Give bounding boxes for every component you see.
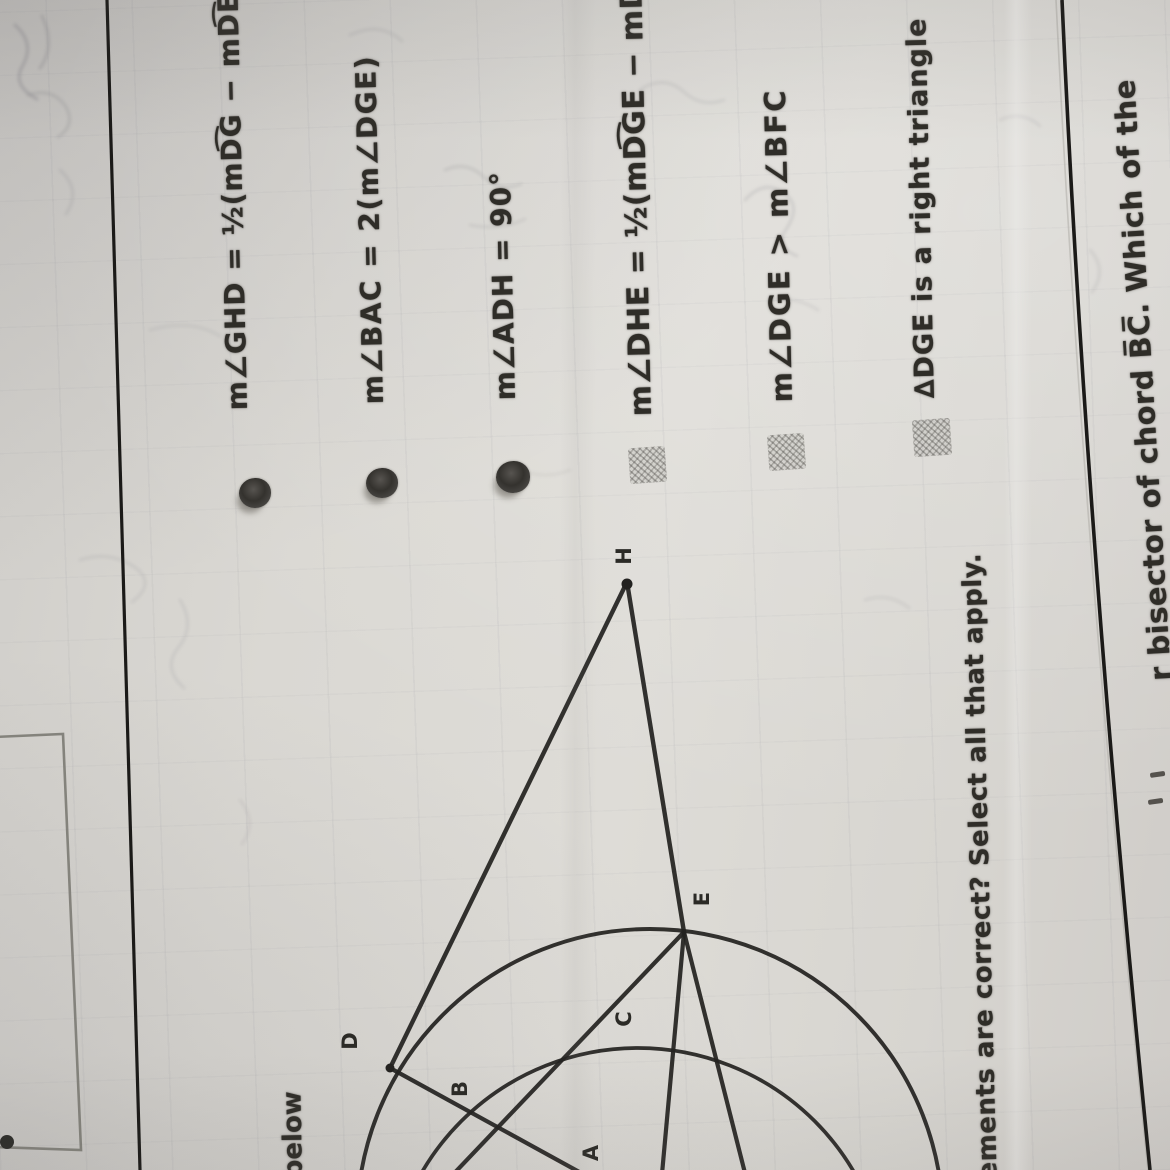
- label-D: D: [338, 1032, 362, 1049]
- label-A: A: [579, 1144, 603, 1161]
- segment-HE: [627, 582, 684, 932]
- answer-checkbox-6[interactable]: [912, 418, 952, 458]
- segment-ECB-extended: [443, 932, 684, 1170]
- segment-E-lower-right: [684, 932, 748, 1170]
- point-H-dot: [622, 579, 633, 590]
- segment-HD: [390, 582, 627, 1068]
- ink-blot: [0, 1135, 14, 1149]
- answer-checkbox-5[interactable]: [767, 433, 806, 471]
- worksheet-photo: H E D C B A m∠GHD = ½(mD͡G − mD͡E) m∠BAC…: [0, 0, 1170, 1170]
- segment-DB-extended: [390, 1068, 603, 1170]
- geometry-figure: [357, 582, 943, 1170]
- answer-bubble-3-filled[interactable]: [496, 461, 530, 493]
- figure-point-labels: H E D C B A: [338, 547, 714, 1161]
- label-B: B: [448, 1081, 472, 1097]
- answer-box-corner: [0, 734, 81, 1150]
- answer-bubble-1-filled[interactable]: [239, 478, 271, 508]
- left-border-line: [107, 0, 140, 1170]
- equals-mark: [1148, 771, 1166, 805]
- answer-bubble-2-filled[interactable]: [366, 468, 398, 498]
- label-E: E: [690, 892, 714, 906]
- label-H: H: [612, 547, 636, 565]
- outer-circle: [357, 929, 943, 1170]
- point-D-dot: [386, 1064, 395, 1073]
- label-C: C: [612, 1011, 636, 1026]
- answer-checkbox-4[interactable]: [628, 446, 667, 484]
- inner-circle: [388, 1048, 888, 1170]
- segment-EA-extended: [661, 932, 684, 1170]
